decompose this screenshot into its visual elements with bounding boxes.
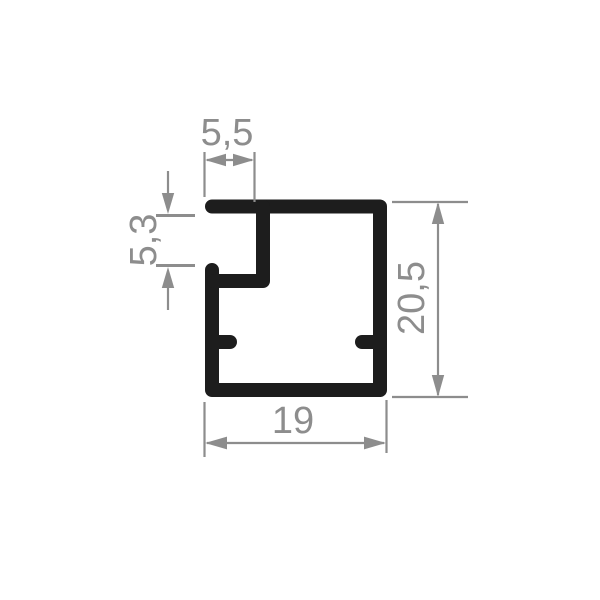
drawing-canvas: 5,5 5,3 20,5 19: [0, 0, 600, 600]
dimension-label-overall-height: 20,5: [391, 261, 433, 335]
dimension-overall-height: 20,5: [391, 202, 468, 397]
dimension-arrow-down: [162, 193, 174, 214]
dimension-arrow-right: [364, 437, 386, 450]
dimension-label-overall-width: 19: [272, 400, 314, 442]
profile-main-outline: [212, 207, 380, 391]
dimension-label-slot-width: 5,5: [201, 112, 254, 154]
profile-channel-wall: [214, 207, 263, 282]
profile-cross-section-drawing: 5,5 5,3 20,5 19: [0, 0, 600, 600]
dimension-arrow-left: [205, 437, 227, 450]
dimension-label-slot-depth: 5,3: [123, 214, 165, 267]
dimension-slot-depth: 5,3: [123, 171, 195, 310]
dimension-arrow-left: [205, 154, 226, 166]
dimension-arrow-down: [432, 375, 444, 397]
dimension-overall-width: 19: [205, 400, 387, 457]
dimension-arrow-up: [432, 202, 444, 224]
dimension-arrow-right: [233, 154, 254, 166]
dimension-arrow-up: [162, 267, 174, 288]
profile-shape: [212, 207, 380, 391]
dimension-slot-width: 5,5: [201, 112, 255, 202]
